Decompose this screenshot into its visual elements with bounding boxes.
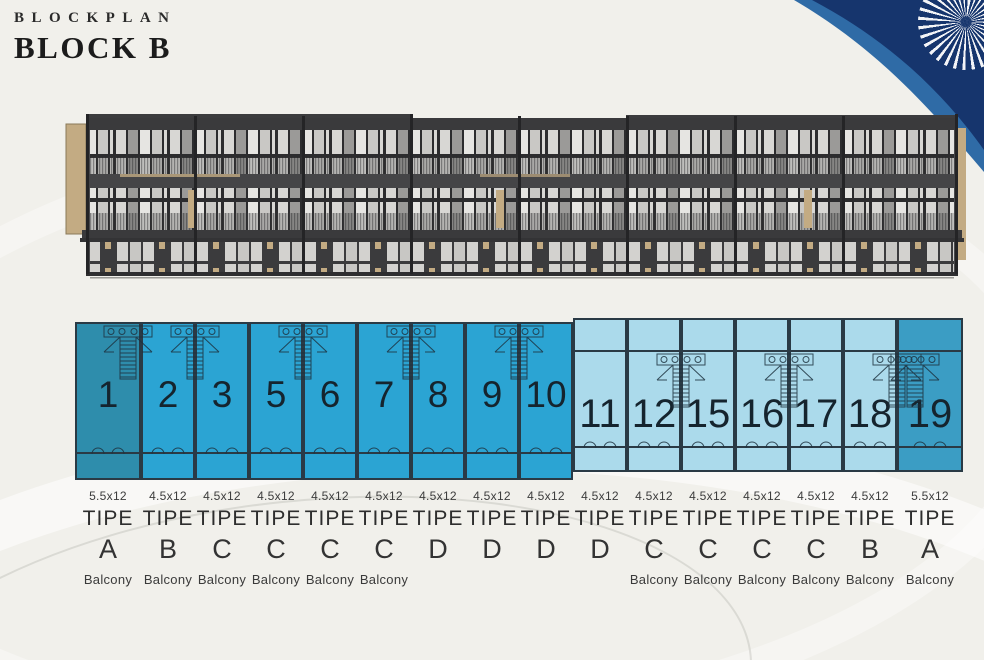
unit-porch <box>521 452 571 478</box>
unit-number: 3 <box>197 376 247 413</box>
unit-dimension: 4.5x12 <box>303 489 357 503</box>
unit-interior: 8 <box>413 324 463 452</box>
tipe-label: TIPE <box>573 507 627 531</box>
unit-interior: 10 <box>521 324 571 452</box>
unit-interior: 15 <box>683 352 733 446</box>
unit-label-column-10: 4.5x12TIPED <box>519 489 573 587</box>
tipe-label: TIPE <box>519 507 573 531</box>
unit-porch <box>683 446 733 470</box>
balcony-label: Balcony <box>735 572 789 587</box>
unit-label-column-6: 4.5x12TIPECBalcony <box>303 489 357 587</box>
unit-type: D <box>411 534 465 565</box>
unit-12: 12 <box>627 318 681 472</box>
unit-dimension: 4.5x12 <box>519 489 573 503</box>
tipe-label: TIPE <box>75 507 141 531</box>
unit-label-column-5: 4.5x12TIPECBalcony <box>249 489 303 587</box>
unit-number: 7 <box>359 376 409 413</box>
tipe-label: TIPE <box>735 507 789 531</box>
unit-label-column-19: 5.5x12TIPEABalcony <box>897 489 963 587</box>
unit-dimension: 4.5x12 <box>573 489 627 503</box>
unit-porch <box>899 446 961 470</box>
unit-number: 18 <box>845 394 895 434</box>
unit-type: A <box>75 534 141 565</box>
unit-porch <box>77 452 139 478</box>
unit-label-column-15: 4.5x12TIPECBalcony <box>681 489 735 587</box>
balcony-label: Balcony <box>897 572 963 587</box>
unit-dimension: 4.5x12 <box>789 489 843 503</box>
unit-type: D <box>519 534 573 565</box>
balcony-label: Balcony <box>195 572 249 587</box>
blockplan-slide: BLOCKPLAN BLOCK B <box>0 0 984 660</box>
tipe-label: TIPE <box>465 507 519 531</box>
unit-3: 3 <box>195 322 249 480</box>
unit-number: 17 <box>791 394 841 434</box>
unit-dimension: 4.5x12 <box>141 489 195 503</box>
unit-label-column-16: 4.5x12TIPECBalcony <box>735 489 789 587</box>
unit-dimension: 4.5x12 <box>465 489 519 503</box>
tipe-label: TIPE <box>303 507 357 531</box>
unit-9: 9 <box>465 322 519 480</box>
unit-dimension: 4.5x12 <box>735 489 789 503</box>
unit-number: 11 <box>575 394 625 434</box>
unit-dimension: 4.5x12 <box>249 489 303 503</box>
unit-backyard <box>575 320 625 352</box>
unit-number: 5 <box>251 376 301 413</box>
unit-type: C <box>249 534 303 565</box>
unit-backyard <box>899 320 961 352</box>
page-kicker: BLOCKPLAN <box>14 10 177 27</box>
unit-backyard <box>683 320 733 352</box>
unit-dimension: 5.5x12 <box>75 489 141 503</box>
unit-2: 2 <box>141 322 195 480</box>
unit-porch <box>197 452 247 478</box>
balcony-label: Balcony <box>843 572 897 587</box>
tipe-label: TIPE <box>627 507 681 531</box>
unit-interior: 6 <box>305 324 355 452</box>
tipe-label: TIPE <box>357 507 411 531</box>
unit-5: 5 <box>249 322 303 480</box>
unit-interior: 16 <box>737 352 787 446</box>
tipe-label: TIPE <box>897 507 963 531</box>
tipe-label: TIPE <box>249 507 303 531</box>
balcony-label: Balcony <box>75 572 141 587</box>
unit-8: 8 <box>411 322 465 480</box>
balcony-label: Balcony <box>627 572 681 587</box>
unit-label-column-8: 4.5x12TIPED <box>411 489 465 587</box>
tipe-label: TIPE <box>789 507 843 531</box>
unit-label-column-3: 4.5x12TIPECBalcony <box>195 489 249 587</box>
page-title: BLOCK B <box>14 30 177 66</box>
floor-plan: 123567891011121516171819 <box>75 316 963 488</box>
unit-17: 17 <box>789 318 843 472</box>
unit-18: 18 <box>843 318 897 472</box>
unit-type: C <box>303 534 357 565</box>
unit-label-column-9: 4.5x12TIPED <box>465 489 519 587</box>
unit-porch <box>305 452 355 478</box>
balcony-label: Balcony <box>357 572 411 587</box>
unit-label-column-2: 4.5x12TIPEBBalcony <box>141 489 195 587</box>
unit-number: 12 <box>629 394 679 434</box>
balcony-label: Balcony <box>249 572 303 587</box>
unit-backyard <box>629 320 679 352</box>
unit-porch <box>629 446 679 470</box>
unit-label-column-12: 4.5x12TIPECBalcony <box>627 489 681 587</box>
unit-interior: 17 <box>791 352 841 446</box>
unit-number: 9 <box>467 376 517 413</box>
unit-type: C <box>735 534 789 565</box>
unit-type: D <box>465 534 519 565</box>
tipe-label: TIPE <box>411 507 465 531</box>
unit-number: 8 <box>413 376 463 413</box>
unit-type: A <box>897 534 963 565</box>
unit-labels-row: 5.5x12TIPEABalcony4.5x12TIPEBBalcony4.5x… <box>75 489 963 587</box>
unit-number: 19 <box>899 394 961 434</box>
unit-interior: 9 <box>467 324 517 452</box>
unit-porch <box>845 446 895 470</box>
unit-type: B <box>843 534 897 565</box>
unit-interior: 18 <box>845 352 895 446</box>
unit-number: 10 <box>521 376 571 413</box>
unit-porch <box>359 452 409 478</box>
unit-type: C <box>357 534 411 565</box>
unit-dimension: 4.5x12 <box>357 489 411 503</box>
unit-19: 19 <box>897 318 963 472</box>
unit-interior: 12 <box>629 352 679 446</box>
unit-backyard <box>737 320 787 352</box>
unit-label-column-17: 4.5x12TIPECBalcony <box>789 489 843 587</box>
unit-dimension: 4.5x12 <box>411 489 465 503</box>
building-elevation-drawing <box>60 112 968 284</box>
unit-porch <box>143 452 193 478</box>
unit-number: 6 <box>305 376 355 413</box>
unit-type: C <box>195 534 249 565</box>
unit-16: 16 <box>735 318 789 472</box>
unit-dimension: 5.5x12 <box>897 489 963 503</box>
unit-number: 1 <box>77 376 139 413</box>
unit-dimension: 4.5x12 <box>681 489 735 503</box>
unit-type: D <box>573 534 627 565</box>
balcony-label: Balcony <box>303 572 357 587</box>
tipe-label: TIPE <box>141 507 195 531</box>
tipe-label: TIPE <box>195 507 249 531</box>
balcony-label: Balcony <box>141 572 195 587</box>
unit-interior: 11 <box>575 352 625 446</box>
unit-interior: 3 <box>197 324 247 452</box>
unit-porch <box>251 452 301 478</box>
unit-label-column-7: 4.5x12TIPECBalcony <box>357 489 411 587</box>
unit-interior: 2 <box>143 324 193 452</box>
unit-6: 6 <box>303 322 357 480</box>
unit-interior: 5 <box>251 324 301 452</box>
unit-backyard <box>791 320 841 352</box>
unit-interior: 19 <box>899 352 961 446</box>
tipe-label: TIPE <box>681 507 735 531</box>
unit-porch <box>575 446 625 470</box>
unit-type: C <box>681 534 735 565</box>
unit-label-column-11: 4.5x12TIPED <box>573 489 627 587</box>
unit-interior: 1 <box>77 324 139 452</box>
unit-1: 1 <box>75 322 141 480</box>
unit-dimension: 4.5x12 <box>843 489 897 503</box>
unit-number: 2 <box>143 376 193 413</box>
unit-porch <box>413 452 463 478</box>
unit-type: C <box>627 534 681 565</box>
unit-porch <box>467 452 517 478</box>
unit-label-column-1: 5.5x12TIPEABalcony <box>75 489 141 587</box>
unit-dimension: 4.5x12 <box>627 489 681 503</box>
unit-dimension: 4.5x12 <box>195 489 249 503</box>
unit-7: 7 <box>357 322 411 480</box>
unit-number: 16 <box>737 394 787 434</box>
header: BLOCKPLAN BLOCK B <box>14 10 177 66</box>
unit-type: C <box>789 534 843 565</box>
balcony-label: Balcony <box>789 572 843 587</box>
unit-backyard <box>845 320 895 352</box>
unit-number: 15 <box>683 394 733 434</box>
brand-swirl-logo-icon <box>918 0 984 70</box>
unit-label-column-18: 4.5x12TIPEBBalcony <box>843 489 897 587</box>
unit-porch <box>737 446 787 470</box>
unit-10: 10 <box>519 322 573 480</box>
unit-11: 11 <box>573 318 627 472</box>
unit-15: 15 <box>681 318 735 472</box>
balcony-label: Balcony <box>681 572 735 587</box>
unit-type: B <box>141 534 195 565</box>
unit-porch <box>791 446 841 470</box>
unit-interior: 7 <box>359 324 409 452</box>
tipe-label: TIPE <box>843 507 897 531</box>
